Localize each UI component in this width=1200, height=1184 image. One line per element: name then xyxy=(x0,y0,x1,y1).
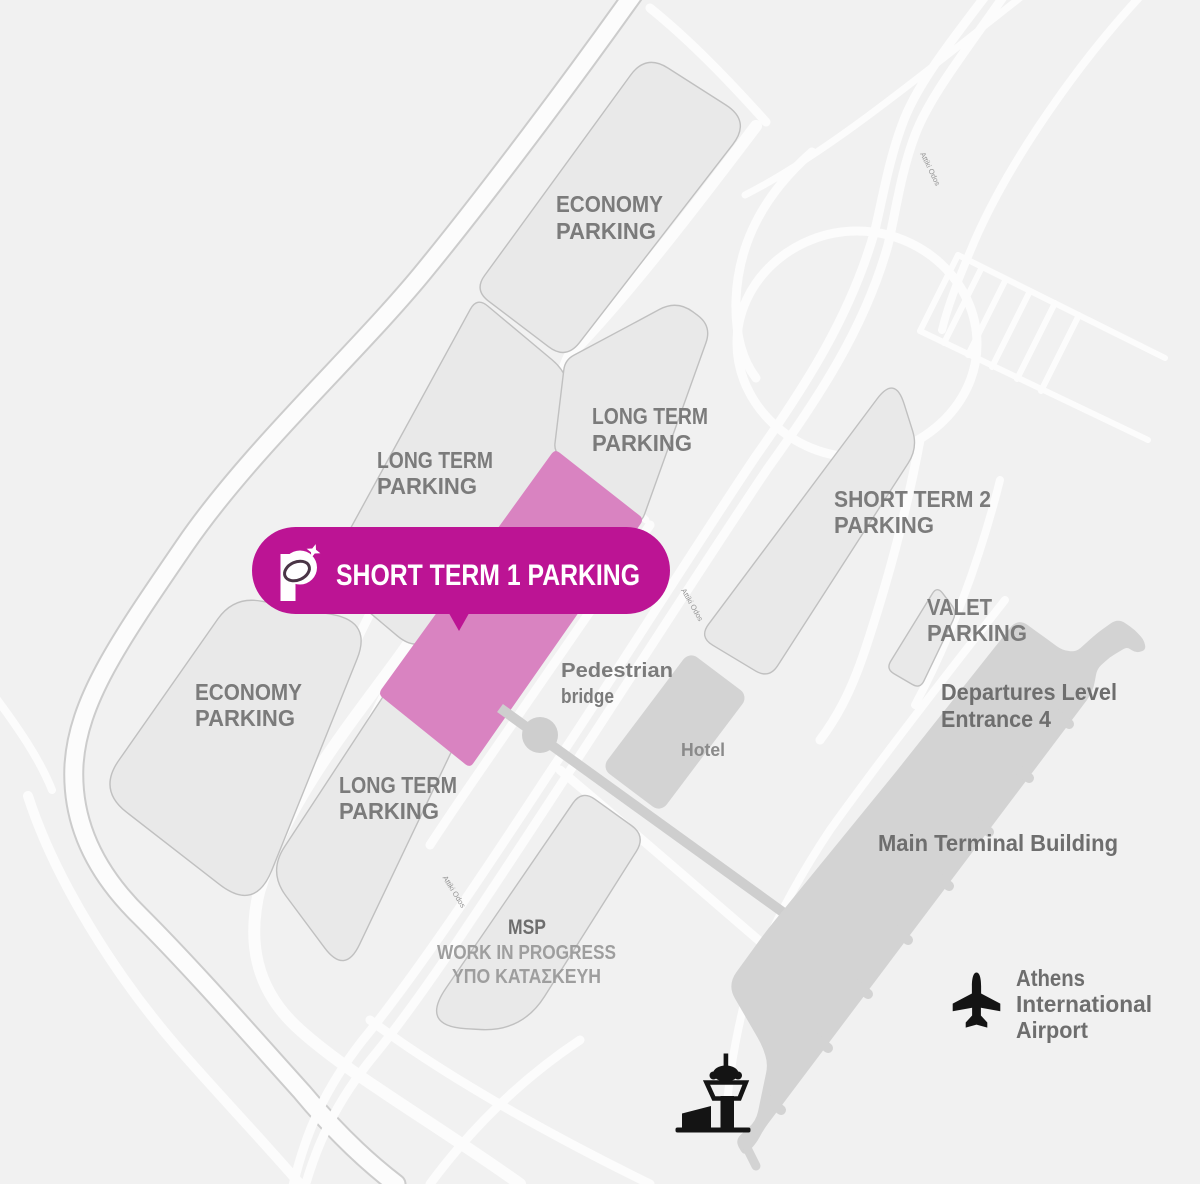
svg-text:Entrance 4: Entrance 4 xyxy=(941,706,1051,732)
svg-text:WORK IN PROGRESS: WORK IN PROGRESS xyxy=(437,942,616,964)
svg-text:LONG TERM: LONG TERM xyxy=(592,403,708,429)
svg-text:PARKING: PARKING xyxy=(339,798,439,824)
svg-text:bridge: bridge xyxy=(561,686,614,708)
svg-text:PARKING: PARKING xyxy=(834,512,934,538)
svg-text:Pedestrian: Pedestrian xyxy=(561,660,673,682)
svg-text:Hotel: Hotel xyxy=(681,740,725,760)
svg-text:VALET: VALET xyxy=(927,594,992,620)
svg-text:PARKING: PARKING xyxy=(377,473,477,499)
svg-text:ECONOMY: ECONOMY xyxy=(556,191,663,217)
svg-text:Main Terminal Building: Main Terminal Building xyxy=(878,830,1118,856)
svg-text:Airport: Airport xyxy=(1016,1017,1088,1043)
svg-text:PARKING: PARKING xyxy=(592,430,692,456)
svg-text:Departures Level: Departures Level xyxy=(941,679,1117,705)
svg-text:ECONOMY: ECONOMY xyxy=(195,679,302,705)
svg-text:LONG TERM: LONG TERM xyxy=(339,772,457,798)
svg-text:PARKING: PARKING xyxy=(556,218,656,244)
svg-text:SHORT TERM 2: SHORT TERM 2 xyxy=(834,486,991,512)
svg-text:Athens: Athens xyxy=(1016,965,1085,991)
svg-text:PARKING: PARKING xyxy=(927,620,1027,646)
svg-text:PARKING: PARKING xyxy=(195,705,295,731)
svg-text:MSP: MSP xyxy=(508,916,546,939)
svg-text:International: International xyxy=(1016,991,1152,1017)
svg-text:LONG TERM: LONG TERM xyxy=(377,447,493,473)
svg-text:ΥΠΟ ΚΑΤΑΣΚΕΥΗ: ΥΠΟ ΚΑΤΑΣΚΕΥΗ xyxy=(452,966,601,988)
svg-text:SHORT TERM 1 PARKING: SHORT TERM 1 PARKING xyxy=(336,559,640,592)
